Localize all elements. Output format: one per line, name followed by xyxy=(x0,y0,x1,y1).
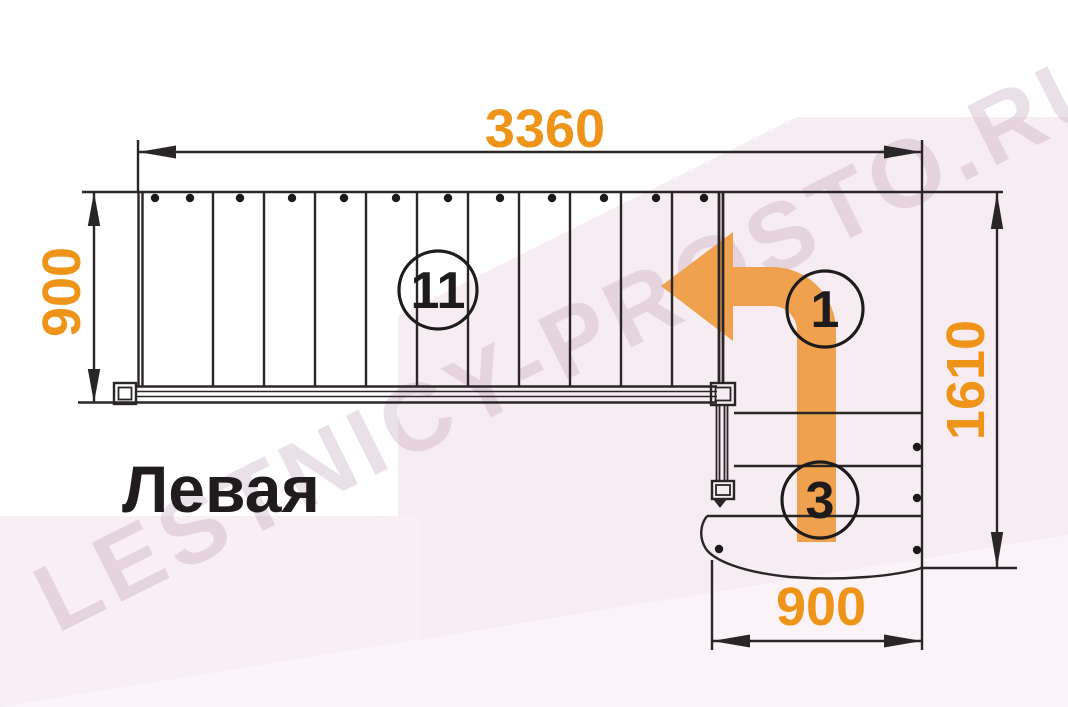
staircase-plan-drawing: LESTNICY-PROSTO.RU xyxy=(0,0,1068,707)
balustrade-rails xyxy=(717,405,728,481)
badge-main-flight-count: 11 xyxy=(411,262,466,320)
dim-bottom-width: 900 xyxy=(776,577,866,637)
dim-top-width: 3360 xyxy=(485,99,605,159)
badge-turn-count: 1 xyxy=(811,281,840,339)
dim-left-height: 900 xyxy=(32,247,92,337)
dimension-texts: 3360 900 1610 900 xyxy=(32,99,996,637)
handrail-start-mark xyxy=(713,499,727,508)
lower-post xyxy=(712,481,734,499)
dimension-lines xyxy=(94,140,1017,650)
stringer xyxy=(78,387,717,403)
badge-lower-flight-count: 3 xyxy=(806,472,835,530)
plan-title: Левая xyxy=(122,451,320,527)
plan-svg: 11 1 3 3360 900 1610 900 xyxy=(0,0,1068,707)
dim-right-height: 1610 xyxy=(936,320,996,440)
left-post xyxy=(114,383,136,404)
